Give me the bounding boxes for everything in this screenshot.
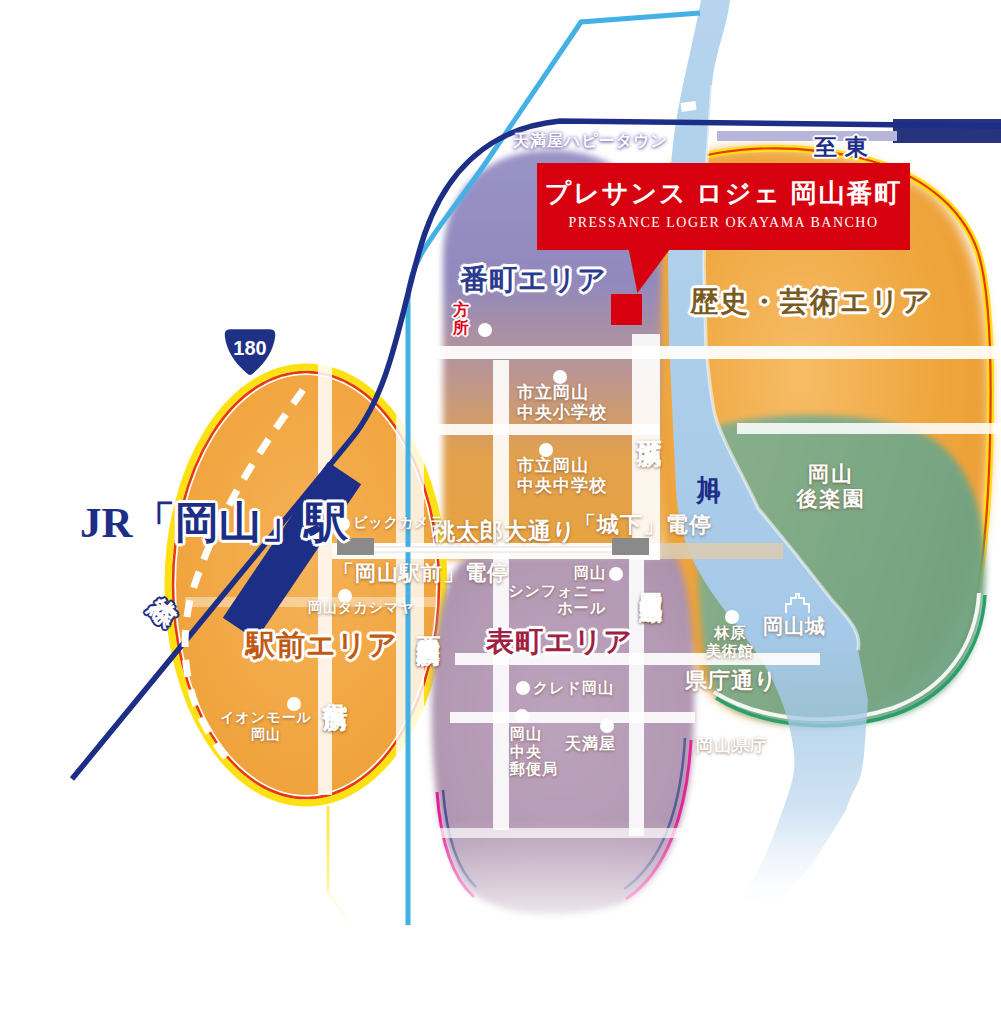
area-label-omotecho: 表町エリア: [486, 625, 633, 658]
poi-label-takashimaya: 岡山タカシマヤ: [308, 600, 415, 617]
poi-label-junior-high-school: 市立岡山 中央中学校: [517, 456, 607, 496]
poi-label-happytown: 天満屋ハピータウン: [513, 132, 668, 151]
poi-label-hayashibara-museum: 林原 美術館: [697, 625, 763, 660]
road-label-nishigawa: 西川緑道公園筋: [414, 618, 442, 625]
jr-okayama-station-label: JR「岡山」駅: [80, 498, 348, 549]
road-label-momotaro: 桃太郎大通り: [432, 518, 577, 545]
partial-direction-label-east: 至 東: [814, 134, 869, 161]
okayama-castle-label: 岡山城: [763, 615, 826, 639]
poi-label-tenmaya: 天満屋: [565, 735, 616, 754]
property-title: プレサンス ロジェ 岡山番町: [537, 176, 910, 211]
poi-label-central-post-office: 岡山 中央 郵便局: [510, 726, 558, 779]
poi-label-symphony-hall: 岡山 シンフォニー ホール: [500, 565, 606, 618]
route-180-number: 180: [224, 337, 276, 360]
tram-stop-shiroshita: [612, 538, 649, 555]
property-banner: プレサンス ロジェ 岡山番町 PRESSANCE LOGER OKAYAMA B…: [537, 163, 910, 250]
poi-label-prefectural-office: 岡山県庁: [696, 736, 768, 756]
asahi-river-label: 旭川: [694, 455, 722, 465]
poi-label-elementary-school: 市立岡山 中央小学校: [517, 383, 607, 423]
poi-label-bic-camera: ビックカメラ: [353, 515, 445, 532]
property-subtitle: PRESSANCE LOGER OKAYAMA BANCHO: [537, 215, 910, 231]
road-label-kencho-dori: 県庁通り: [685, 668, 778, 694]
area-label-ekimae: 駅前エリア: [246, 628, 398, 662]
okayama-area-map: プレサンス ロジェ 岡山番町 PRESSANCE LOGER OKAYAMA B…: [0, 0, 1001, 1025]
area-label-bancho: 番町エリア: [460, 263, 607, 296]
poi-label-cred-okayama: クレド岡山: [533, 680, 614, 698]
tram-stop-label-shiroshita: 「城下」電停: [574, 512, 712, 538]
area-label-rekishi-geijutsu: 歴史・芸術エリア: [690, 285, 932, 318]
road-label-shiroshita-suji: 城下筋: [634, 420, 664, 425]
poi-label-aeon-mall: イオンモール 岡山: [220, 710, 312, 743]
road-label-shiyakusho-suji: 市役所筋: [320, 682, 350, 688]
partial-hidden-poi-label: 方 所: [453, 301, 470, 336]
korakuen-label: 岡山 後楽園: [775, 462, 887, 512]
tram-stop-label-okayama-ekimae: 「岡山駅前」電停: [333, 561, 509, 586]
road-label-higashiyama-line: 岡山電気軌道東山線: [637, 574, 664, 583]
site-location-marker: [611, 294, 642, 325]
